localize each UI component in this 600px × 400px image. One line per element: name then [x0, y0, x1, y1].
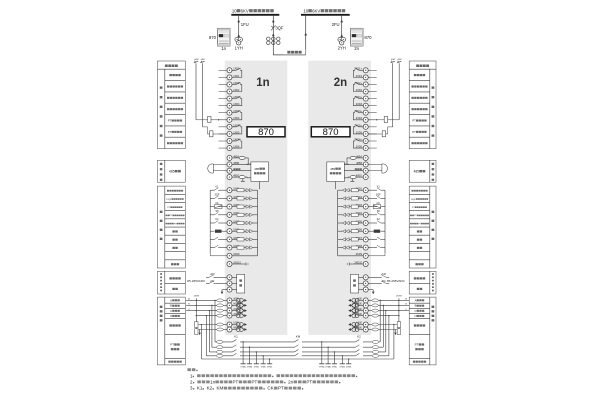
svg-text:2n: 2n: [288, 380, 294, 385]
svg-text:485: 485: [169, 169, 175, 173]
svg-text:2FU: 2FU: [332, 22, 340, 27]
svg-text:2YMn: 2YMn: [340, 366, 346, 368]
svg-text:K2: K2: [357, 335, 361, 339]
svg-text:PT: PT: [412, 119, 416, 123]
svg-text:2YML: 2YML: [346, 366, 352, 368]
svg-text:2YMb: 2YMb: [325, 366, 331, 368]
svg-text:6KV: 6KV: [241, 8, 249, 13]
svg-text:-KM: -KM: [391, 59, 395, 61]
svg-text:870: 870: [323, 127, 339, 138]
svg-text:CK: CK: [377, 202, 381, 205]
svg-text:2YH: 2YH: [338, 45, 346, 50]
svg-text:870: 870: [209, 35, 217, 40]
svg-text:1YMb: 1YMb: [247, 366, 253, 368]
svg-text:85-265VADC: 85-265VADC: [187, 279, 206, 283]
svg-text:PT: PT: [412, 130, 416, 134]
svg-text:2n: 2n: [354, 46, 359, 51]
svg-text:1SYB: 1SYB: [194, 296, 200, 298]
svg-text:1YMn: 1YMn: [260, 366, 266, 368]
svg-text:2n: 2n: [334, 77, 347, 89]
svg-text:PT: PT: [168, 119, 172, 123]
svg-text:10: 10: [303, 8, 308, 13]
svg-text:PT: PT: [278, 386, 284, 391]
svg-text:19QF: 19QF: [411, 199, 417, 201]
svg-text:A: A: [170, 298, 172, 302]
svg-text:-KM: -KM: [200, 59, 204, 61]
svg-text:PT: PT: [252, 380, 258, 385]
svg-text:N: N: [170, 314, 172, 318]
svg-text:C: C: [415, 309, 417, 313]
svg-text:K1: K1: [197, 386, 203, 391]
svg-text:K1: K1: [234, 335, 238, 339]
svg-text:+KM: +KM: [194, 59, 199, 61]
svg-text:2SYB: 2SYB: [396, 296, 402, 298]
svg-text:B: B: [170, 304, 172, 308]
svg-text:KM: KM: [216, 386, 223, 391]
svg-text:1YH: 1YH: [235, 45, 243, 50]
svg-text:3QF: 3QF: [215, 194, 220, 197]
svg-text:1YMc: 1YMc: [254, 366, 259, 368]
svg-text:+KM: +KM: [397, 59, 402, 61]
svg-text:PT: PT: [306, 380, 312, 385]
svg-text:N: N: [415, 314, 417, 318]
svg-text:1YML: 1YML: [267, 366, 273, 368]
svg-text:485: 485: [330, 167, 335, 171]
svg-text:485: 485: [254, 167, 259, 171]
svg-text:K2: K2: [207, 386, 213, 391]
svg-text:6KV: 6KV: [312, 8, 320, 13]
svg-text:PT: PT: [233, 380, 239, 385]
svg-text:870: 870: [364, 35, 372, 40]
svg-text:1n: 1n: [221, 46, 226, 51]
svg-text:A: A: [415, 298, 417, 302]
svg-text:B: B: [415, 304, 417, 308]
svg-text:CK: CK: [267, 386, 273, 391]
svg-text:PT: PT: [168, 130, 172, 134]
svg-text:485: 485: [414, 169, 420, 173]
svg-text:KM: KM: [296, 335, 301, 339]
svg-text:1n: 1n: [256, 77, 269, 89]
svg-text:PT: PT: [415, 343, 419, 347]
svg-text:CK: CK: [215, 202, 219, 205]
svg-text:2YMc: 2YMc: [332, 366, 337, 368]
svg-text:85-265VADC: 85-265VADC: [387, 279, 406, 283]
svg-text:870: 870: [258, 127, 274, 138]
svg-text:19QF: 19QF: [166, 199, 172, 201]
svg-text:1n: 1n: [210, 380, 216, 385]
svg-text:1FU: 1FU: [241, 22, 249, 27]
svg-text:10: 10: [232, 8, 237, 13]
svg-text:3QF: 3QF: [376, 194, 381, 197]
svg-text:3QF: 3QF: [275, 25, 284, 30]
svg-text:C: C: [170, 309, 172, 313]
svg-text:PT: PT: [170, 343, 174, 347]
